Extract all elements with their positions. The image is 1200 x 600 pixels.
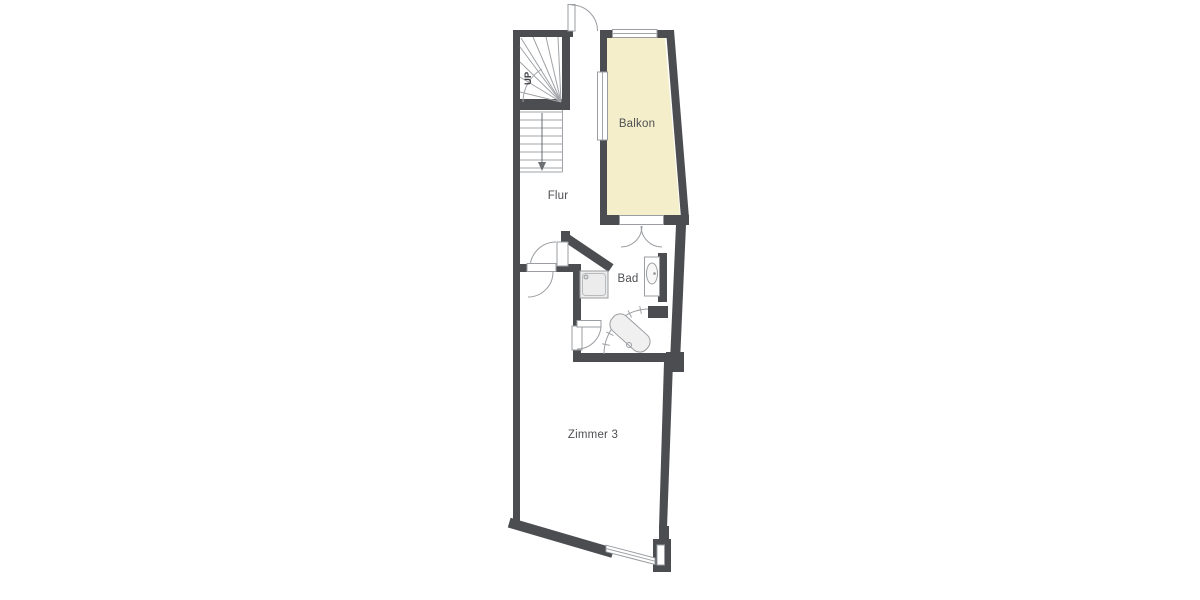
floor-plan-page: { "page": { "background": "#ffffff" }, "… <box>0 0 1200 600</box>
faucet-dot <box>653 272 656 275</box>
wall-bad-bottom <box>573 353 668 362</box>
washbasin <box>645 257 660 296</box>
wall-outer-right-upper <box>670 225 686 362</box>
balkon-top-window <box>613 30 658 38</box>
wall-bad-pier <box>648 306 668 318</box>
wall-bottom-diagonal <box>514 524 608 552</box>
stair-direction-arrow <box>538 113 546 171</box>
right-wall-recess <box>657 545 665 565</box>
floor-plan-canvas: UP <box>0 0 1200 600</box>
balkon-left-window <box>598 72 608 140</box>
label-zimmer3: Zimmer 3 <box>568 429 618 441</box>
wall-flur-bad-diagonal <box>565 237 611 268</box>
wall-stair-landing <box>513 99 570 110</box>
zimmer-bottom-window <box>606 545 655 564</box>
entry-door <box>568 5 598 32</box>
stair-up-label: UP <box>523 71 534 85</box>
wall-stair-right <box>562 30 570 110</box>
winder-treads <box>520 37 561 102</box>
label-bad: Bad <box>617 273 638 285</box>
balkon-french-doors <box>620 216 664 248</box>
wall-zimmer-right <box>659 362 673 528</box>
flur-door-lower <box>527 264 556 298</box>
bathtub-basin <box>606 310 654 356</box>
label-balkon: Balkon <box>619 118 655 130</box>
label-flur: Flur <box>548 190 569 202</box>
shower-tray <box>580 271 608 298</box>
corner-bathtub <box>602 306 654 356</box>
bathroom-fixtures <box>580 257 660 356</box>
